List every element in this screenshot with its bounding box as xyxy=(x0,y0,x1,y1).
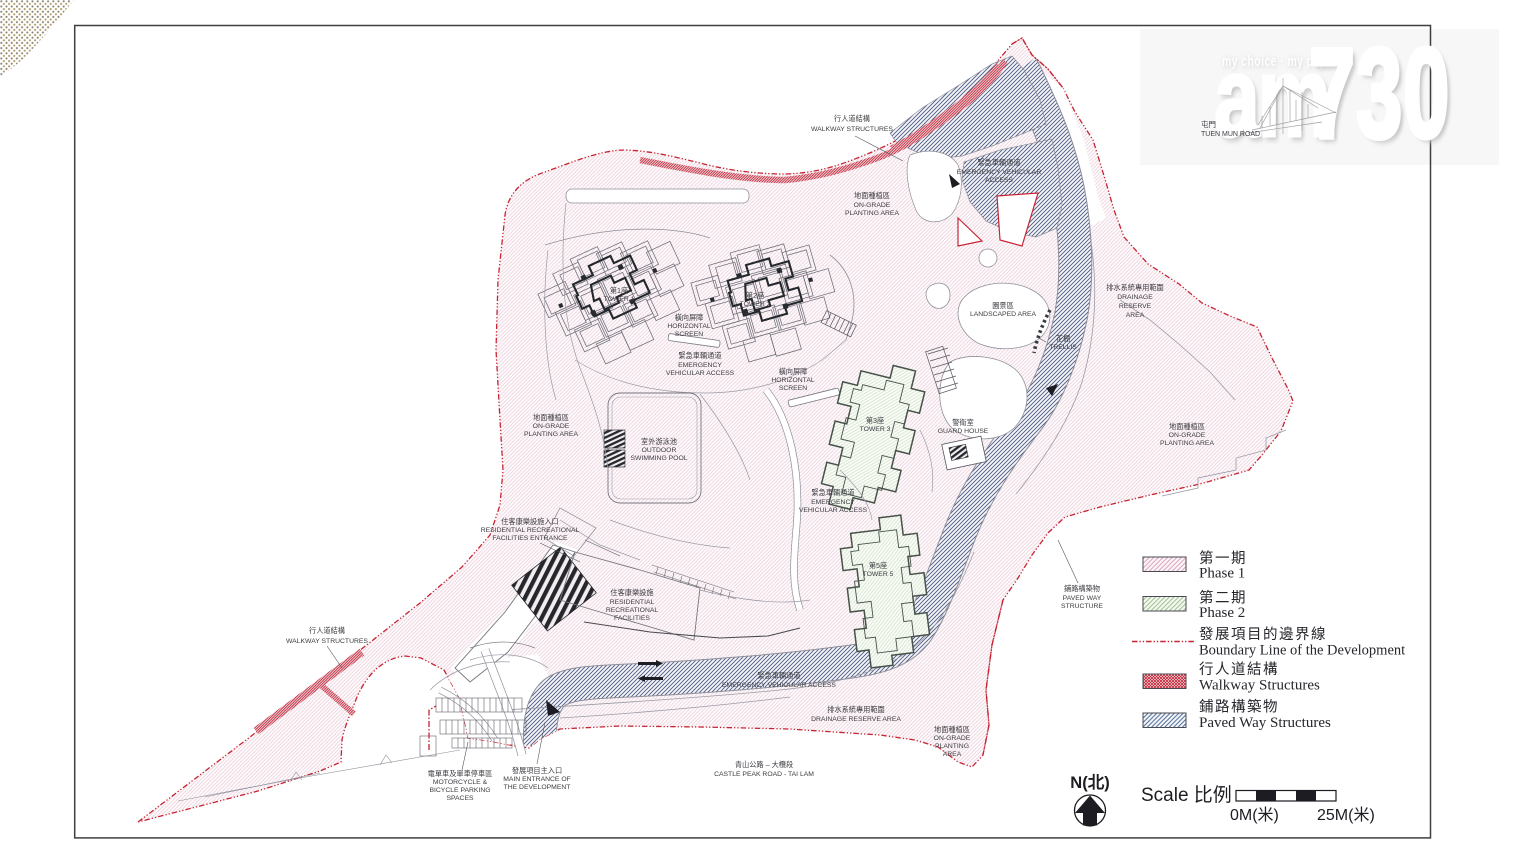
svg-text:Phase 2: Phase 2 xyxy=(1199,605,1245,621)
svg-text:AREA: AREA xyxy=(943,751,962,758)
svg-text:室外游泳池: 室外游泳池 xyxy=(641,437,677,446)
svg-text:緊急車輛通道: 緊急車輛通道 xyxy=(678,351,721,360)
svg-text:730: 730 xyxy=(1309,22,1451,164)
svg-text:Phase 1: Phase 1 xyxy=(1199,566,1245,582)
svg-text:TOWER 3: TOWER 3 xyxy=(860,426,891,433)
svg-text:Paved Way Structures: Paved Way Structures xyxy=(1199,715,1331,731)
svg-text:RESIDENTIAL: RESIDENTIAL xyxy=(610,599,655,606)
svg-text:Walkway Structures: Walkway Structures xyxy=(1199,678,1320,694)
svg-text:橫向屏障: 橫向屏障 xyxy=(675,313,704,322)
svg-text:LANDSCAPED AREA: LANDSCAPED AREA xyxy=(970,311,1037,318)
svg-text:行人道結構: 行人道結構 xyxy=(834,114,870,123)
svg-text:0M(米): 0M(米) xyxy=(1230,806,1279,824)
svg-text:MAIN ENTRANCE OF: MAIN ENTRANCE OF xyxy=(503,776,571,783)
svg-text:SPACES: SPACES xyxy=(446,795,474,802)
svg-text:地面種植區: 地面種植區 xyxy=(934,725,970,734)
svg-text:GUARD HOUSE: GUARD HOUSE xyxy=(938,428,989,435)
svg-text:ON-GRADE: ON-GRADE xyxy=(533,423,570,430)
svg-text:PLANTING AREA: PLANTING AREA xyxy=(1160,440,1214,447)
svg-text:Boundary Line of the Developme: Boundary Line of the Development xyxy=(1199,643,1405,659)
svg-text:TOWER 5: TOWER 5 xyxy=(863,571,894,578)
svg-text:ON-GRADE: ON-GRADE xyxy=(934,735,971,742)
svg-text:RECREATIONAL: RECREATIONAL xyxy=(606,607,659,614)
svg-text:TUEN MUN ROAD: TUEN MUN ROAD xyxy=(1201,131,1260,138)
svg-text:ON-GRADE: ON-GRADE xyxy=(854,202,891,209)
svg-text:發展項目主入口: 發展項目主入口 xyxy=(512,766,562,775)
svg-text:EMERGENCY VEHICULAR ACCESS: EMERGENCY VEHICULAR ACCESS xyxy=(722,682,836,689)
svg-text:EMERGENCY: EMERGENCY xyxy=(678,362,722,369)
svg-text:青山公路 – 大欖段: 青山公路 – 大欖段 xyxy=(735,760,793,769)
svg-text:SCREEN: SCREEN xyxy=(675,331,703,338)
svg-text:VEHICULAR ACCESS: VEHICULAR ACCESS xyxy=(799,507,868,514)
svg-text:第5座: 第5座 xyxy=(869,561,887,570)
svg-text:RESERVE: RESERVE xyxy=(1119,303,1152,310)
svg-text:OUTDOOR: OUTDOOR xyxy=(642,447,677,454)
svg-text:WALKWAY STRUCTURES: WALKWAY STRUCTURES xyxy=(811,126,893,133)
svg-text:RESIDENTIAL RECREATIONAL: RESIDENTIAL RECREATIONAL xyxy=(481,527,580,534)
svg-text:緊急車輛通道: 緊急車輛通道 xyxy=(811,488,854,497)
svg-text:HORIZONTAL: HORIZONTAL xyxy=(771,377,815,384)
svg-text:VEHICULAR ACCESS: VEHICULAR ACCESS xyxy=(666,370,735,377)
svg-text:EMERGENCY VEHICULAR: EMERGENCY VEHICULAR xyxy=(957,169,1042,176)
svg-text:電單車及單車停車區: 電單車及單車停車區 xyxy=(428,769,493,778)
svg-text:地面種植區: 地面種植區 xyxy=(1169,422,1205,431)
svg-text:地面種植區: 地面種植區 xyxy=(854,191,890,200)
svg-text:地面種植區: 地面種植區 xyxy=(533,413,569,422)
svg-text:花棚: 花棚 xyxy=(1056,334,1070,343)
svg-text:TOWER 1: TOWER 1 xyxy=(604,296,635,303)
svg-text:DRAINAGE RESERVE AREA: DRAINAGE RESERVE AREA xyxy=(811,716,901,723)
svg-text:SWIMMING POOL: SWIMMING POOL xyxy=(630,455,687,462)
svg-text:N(北): N(北) xyxy=(1070,773,1109,792)
svg-text:緊急車輛通道: 緊急車輛通道 xyxy=(757,671,800,680)
svg-text:TOWER 2: TOWER 2 xyxy=(740,301,771,308)
svg-text:園景區: 園景區 xyxy=(992,301,1014,310)
svg-text:PAVED WAY: PAVED WAY xyxy=(1063,595,1102,602)
svg-text:WALKWAY STRUCTURES: WALKWAY STRUCTURES xyxy=(286,638,368,645)
svg-text:ON-GRADE: ON-GRADE xyxy=(1169,432,1206,439)
svg-text:排水系統專用範圍: 排水系統專用範圍 xyxy=(1106,283,1164,292)
svg-text:MOTORCYCLE &: MOTORCYCLE & xyxy=(433,779,488,786)
svg-text:CASTLE PEAK ROAD - TAI LAM: CASTLE PEAK ROAD - TAI LAM xyxy=(714,771,814,778)
svg-text:EMERGENCY: EMERGENCY xyxy=(811,499,855,506)
svg-text:橫向屏障: 橫向屏障 xyxy=(779,367,808,376)
svg-text:FACILITIES: FACILITIES xyxy=(614,615,650,622)
svg-text:發展項目的邊界線: 發展項目的邊界線 xyxy=(1199,626,1327,643)
svg-text:警衛室: 警衛室 xyxy=(952,418,974,427)
svg-text:25M(米): 25M(米) xyxy=(1317,806,1375,824)
svg-text:鋪路構築物: 鋪路構築物 xyxy=(1064,584,1100,593)
svg-text:TRELLIS: TRELLIS xyxy=(1049,344,1077,351)
svg-text:THE DEVELOPMENT: THE DEVELOPMENT xyxy=(504,784,571,791)
svg-text:HORIZONTAL: HORIZONTAL xyxy=(667,323,711,330)
svg-text:第3座: 第3座 xyxy=(866,416,884,425)
svg-text:第2座: 第2座 xyxy=(746,291,764,300)
svg-text:ACCESS: ACCESS xyxy=(985,177,1013,184)
svg-text:PLANTING AREA: PLANTING AREA xyxy=(845,210,899,217)
svg-text:Scale 比例: Scale 比例 xyxy=(1141,784,1232,806)
svg-text:第1座: 第1座 xyxy=(610,286,628,295)
svg-text:SCREEN: SCREEN xyxy=(779,385,807,392)
svg-text:鋪路構築物: 鋪路構築物 xyxy=(1199,698,1279,716)
svg-text:FACILITIES ENTRANCE: FACILITIES ENTRANCE xyxy=(492,535,568,542)
svg-text:住客康樂設施入口: 住客康樂設施入口 xyxy=(501,517,559,526)
svg-text:STRUCTURE: STRUCTURE xyxy=(1061,603,1103,610)
svg-text:第一期: 第一期 xyxy=(1199,549,1247,567)
svg-text:緊急車輛通道: 緊急車輛通道 xyxy=(977,158,1020,167)
svg-text:PLANTING AREA: PLANTING AREA xyxy=(524,431,578,438)
svg-text:AREA: AREA xyxy=(1126,312,1145,319)
svg-text:BICYCLE PARKING: BICYCLE PARKING xyxy=(429,787,490,794)
svg-text:DRAINAGE: DRAINAGE xyxy=(1117,294,1153,301)
svg-text:排水系統專用範圍: 排水系統專用範圍 xyxy=(827,705,885,714)
svg-text:PLANTING: PLANTING xyxy=(935,743,969,750)
svg-text:第二期: 第二期 xyxy=(1199,589,1247,607)
svg-text:住客康樂設施: 住客康樂設施 xyxy=(610,588,653,597)
svg-text:行人道結構: 行人道結構 xyxy=(309,626,345,635)
svg-text:行人道結構: 行人道結構 xyxy=(1199,661,1279,678)
